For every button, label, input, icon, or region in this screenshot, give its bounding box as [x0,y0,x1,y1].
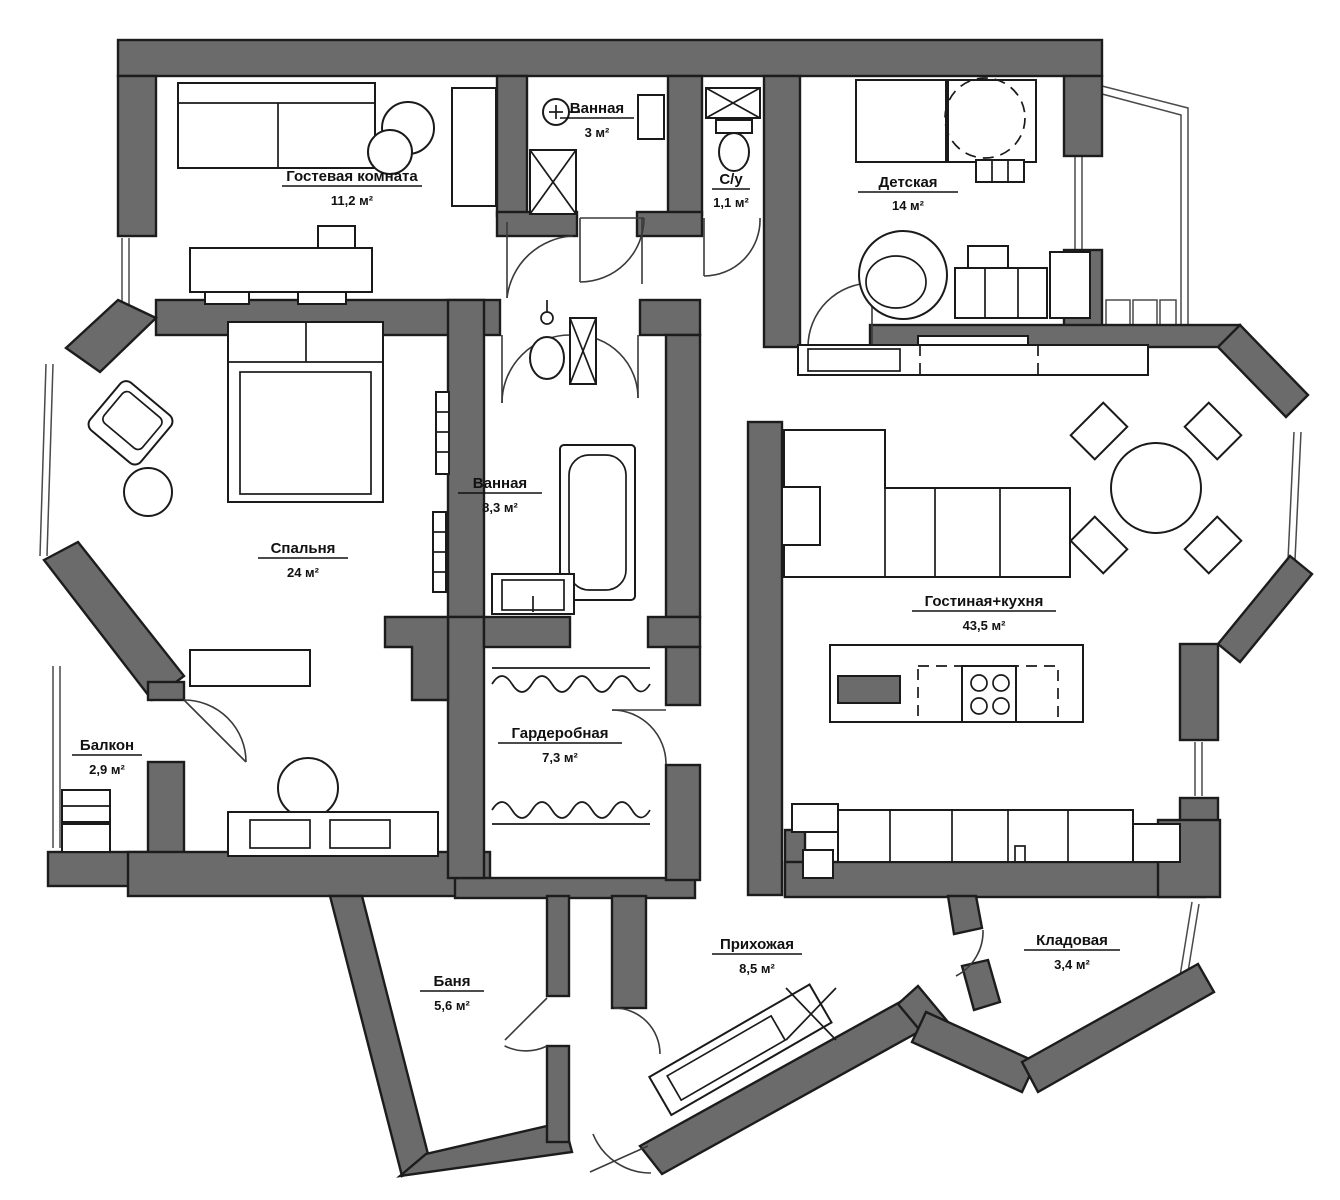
room-label-wardrobe: Гардеробная 7,3 м² [498,725,622,765]
wc-toilet-tank [716,120,752,133]
wall-notch [803,850,833,878]
svg-text:Ванная: Ванная [473,475,527,492]
stove [962,666,1016,722]
tv [918,336,1028,345]
bath-toilet [530,337,564,379]
kids-wardrobe [856,80,946,162]
svg-text:Кладовая: Кладовая [1036,932,1108,949]
svg-text:Спальня: Спальня [271,540,336,557]
dining-chair [1071,403,1128,460]
svg-text:1,1 м²: 1,1 м² [713,195,749,210]
floor-plan-page: Гостевая комната 11,2 м² Ванная 3 м² С/у… [0,0,1340,1200]
svg-text:11,2 м²: 11,2 м² [331,193,374,208]
island-sink [838,676,900,703]
bedroom-shelf [436,392,449,474]
terrace-outline [1102,86,1188,336]
dining-table [1111,443,1201,533]
svg-text:5,6 м²: 5,6 м² [434,998,470,1013]
svg-text:2,9 м²: 2,9 м² [89,762,125,777]
room-label-sauna: Баня 5,6 м² [420,973,484,1013]
svg-text:Прихожая: Прихожая [720,936,794,953]
kids-desk [955,268,1047,318]
svg-text:Гардеробная: Гардеробная [511,725,608,742]
guest-desk [190,248,372,292]
bedroom-console [228,812,438,856]
room-label-bedroom: Спальня 24 м² [258,540,348,580]
svg-text:Ванная: Ванная [570,100,624,117]
room-label-storage: Кладовая 3,4 м² [1024,932,1120,972]
room-label-kids-room: Детская 14 м² [858,174,958,213]
svg-text:7,3 м²: 7,3 м² [542,750,578,765]
guest-monitor [318,226,355,250]
room-label-balcony: Балкон 2,9 м² [72,737,142,777]
svg-text:24 м²: 24 м² [287,565,320,580]
svg-text:Балкон: Балкон [80,737,134,754]
svg-text:Детская: Детская [878,174,937,191]
bedroom-pouf [278,758,338,818]
dining-chair [1185,403,1242,460]
svg-text:3,4 м²: 3,4 м² [1054,957,1090,972]
guest-wardrobe [452,88,496,206]
sofa-notch [782,487,820,545]
bedroom-side-table [124,468,172,516]
guest-bed [178,83,375,168]
svg-text:Гостиная+кухня: Гостиная+кухня [925,593,1044,610]
svg-text:8,5 м²: 8,5 м² [739,961,775,976]
bedroom-dresser [190,650,310,686]
svg-text:Баня: Баня [434,973,471,990]
wardrobe-rail [492,676,650,692]
room-label-bath-small: Ванная 3 м² [560,100,634,140]
svg-text:43,5 м²: 43,5 м² [963,618,1007,633]
dining-chair [1185,517,1242,574]
svg-text:Гостевая комната: Гостевая комната [286,168,418,185]
kids-chair [968,246,1008,268]
sofa [784,430,1070,577]
dining-chair [1071,517,1128,574]
wc-toilet [719,133,749,171]
svg-text:8,3 м²: 8,3 м² [482,500,518,515]
svg-text:3 м²: 3 м² [585,125,610,140]
kids-ladder [976,160,1024,182]
svg-text:14 м²: 14 м² [892,198,925,213]
floor-plan: Гостевая комната 11,2 м² Ванная 3 м² С/у… [0,0,1340,1200]
kids-papasan-chair [859,231,947,319]
room-label-living-kitchen: Гостиная+кухня 43,5 м² [912,593,1056,633]
room-label-guest-room: Гостевая комната 11,2 м² [282,168,422,208]
room-label-hallway: Прихожая 8,5 м² [712,936,802,976]
svg-text:С/у: С/у [719,171,743,188]
walls [44,40,1312,1176]
room-label-wc: С/у 1,1 м² [712,171,750,210]
kitchen-cabinets [838,810,1133,862]
